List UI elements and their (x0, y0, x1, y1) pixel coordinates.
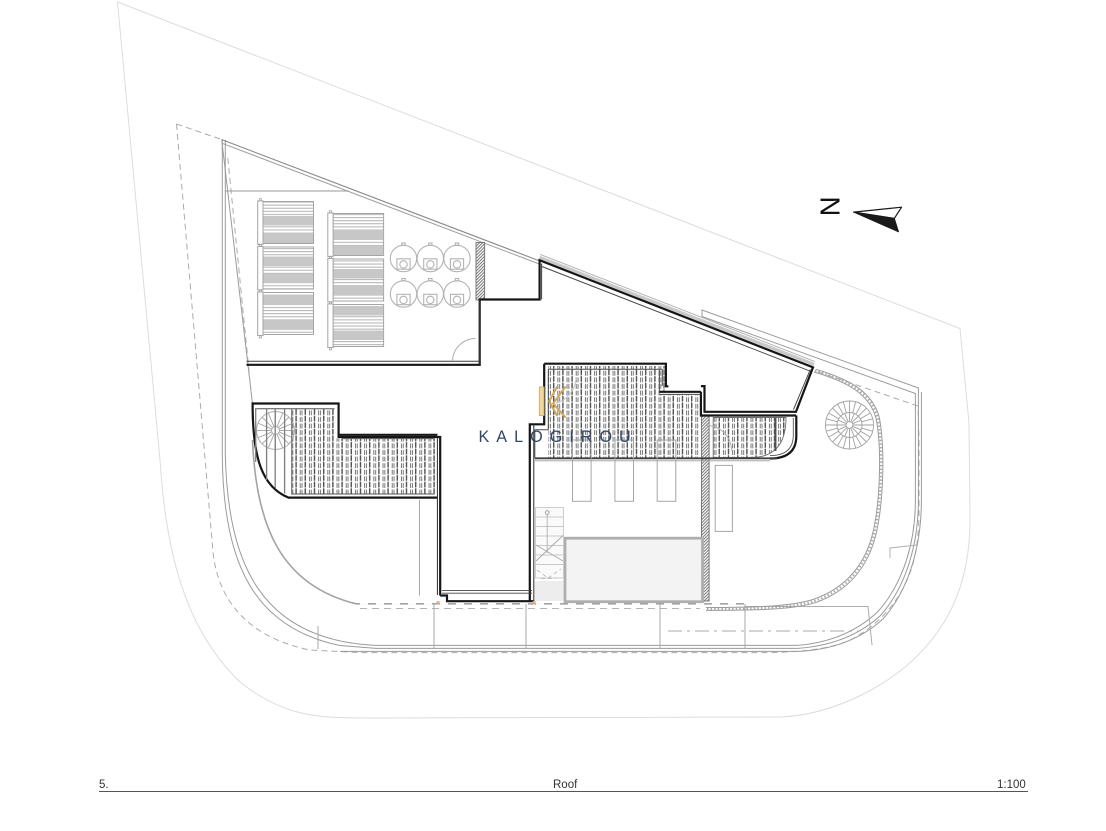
svg-text:Roof: Roof (553, 779, 578, 791)
svg-text:N: N (814, 196, 845, 216)
svg-text:5.: 5. (99, 779, 109, 791)
svg-text:1:100: 1:100 (997, 779, 1026, 791)
svg-text:KALOGIROU: KALOGIROU (479, 428, 638, 446)
